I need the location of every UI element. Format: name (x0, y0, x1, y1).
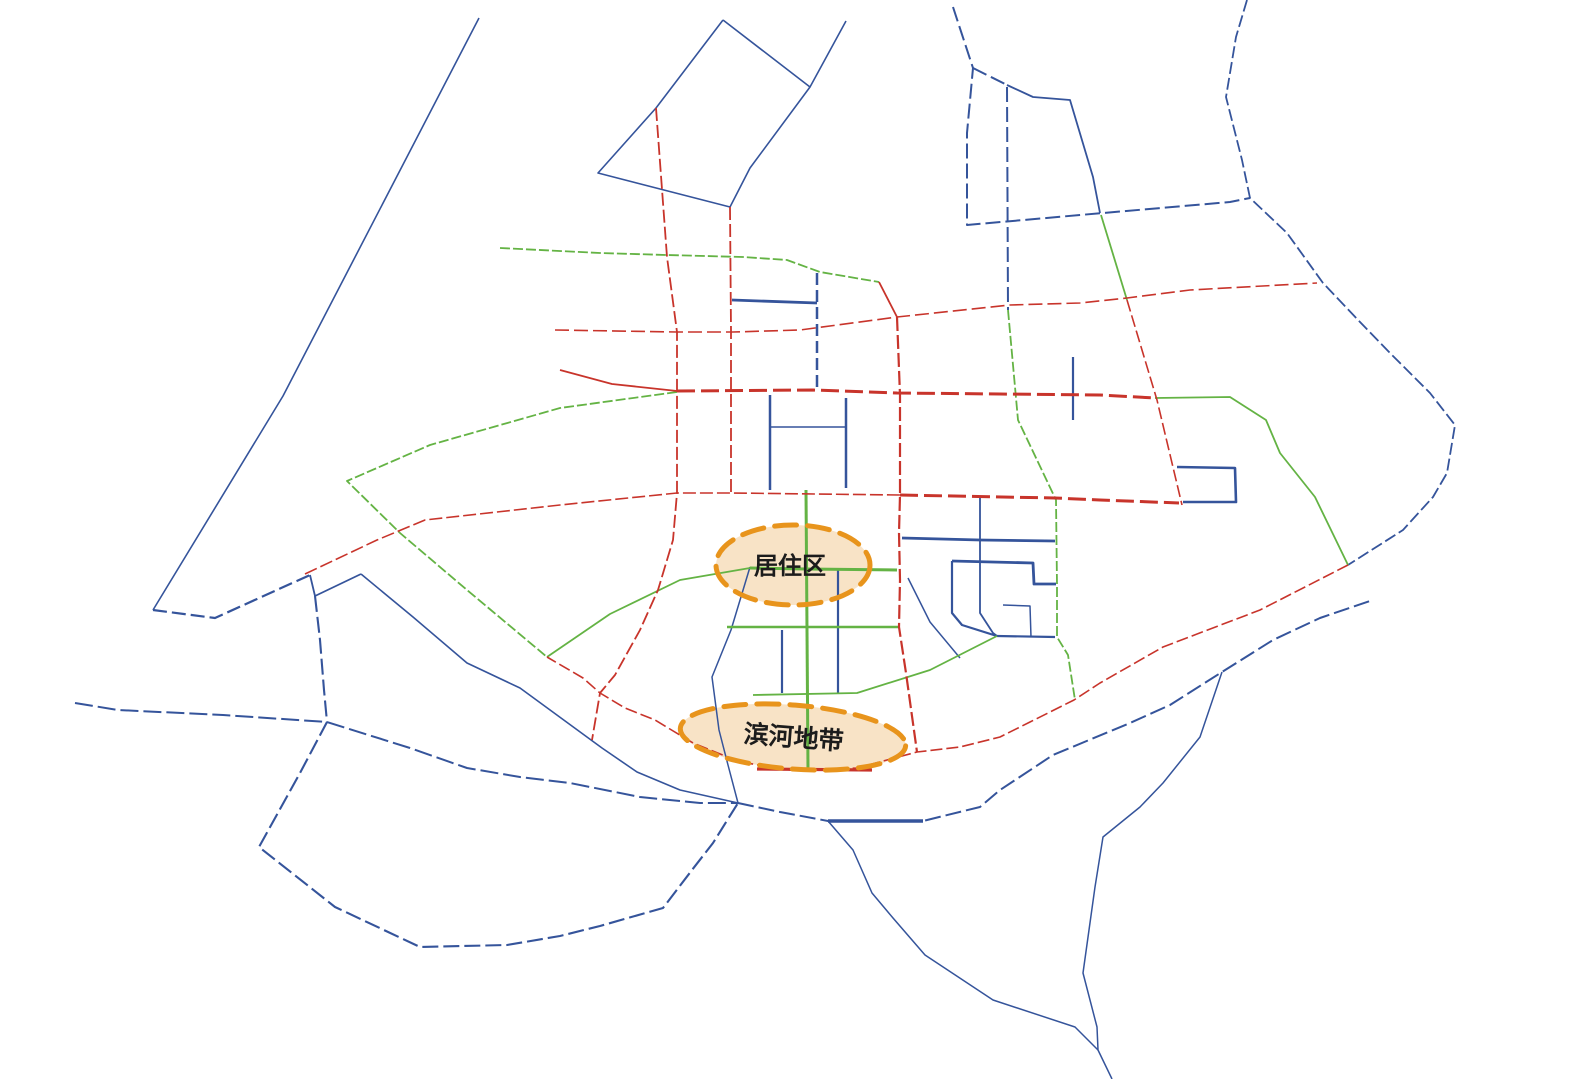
road-blue-10 (828, 821, 1098, 1050)
road-blue-1 (153, 18, 479, 610)
road-network-svg: 居住区滨河地带 (0, 0, 1575, 1079)
road-blue-30 (1003, 605, 1031, 637)
red-road-layer (305, 108, 1348, 770)
road-blue-25 (902, 538, 1055, 541)
road-green-7 (500, 248, 879, 282)
road-blue-4 (361, 574, 738, 803)
road-blue-11 (712, 567, 750, 803)
road-blue-17 (1007, 85, 1100, 213)
road-green-1 (347, 392, 677, 657)
road-blue-14 (730, 87, 810, 207)
road-blue-3 (310, 574, 361, 596)
road-blue-6 (75, 703, 738, 803)
road-blue-13 (723, 20, 846, 87)
road-red-4 (555, 283, 1317, 332)
road-red-2 (730, 207, 731, 493)
road-red-3 (897, 317, 917, 752)
road-red-1 (592, 108, 677, 740)
road-blue-34 (1177, 467, 1236, 502)
road-blue-16 (973, 68, 1008, 310)
road-blue-27 (952, 561, 1056, 584)
road-red-10 (1127, 300, 1182, 505)
road-blue-5 (259, 596, 738, 947)
road-green-8 (1101, 215, 1127, 300)
road-green-10 (1008, 310, 1075, 700)
road-blue-23 (732, 300, 817, 303)
road-blue-12 (598, 20, 730, 207)
road-blue-18 (1226, 0, 1455, 565)
road-red-6 (677, 390, 1155, 398)
road-red-5 (560, 370, 677, 391)
road-green-6 (753, 636, 997, 695)
residential-area-label: 居住区 (754, 552, 826, 580)
road-red-9 (879, 282, 897, 317)
road-blue-15 (953, 7, 1250, 225)
city-planning-map: 居住区滨河地带 (0, 0, 1575, 1079)
road-blue-2 (153, 575, 310, 618)
road-green-9 (1155, 397, 1348, 565)
road-blue-28 (952, 561, 997, 636)
road-red-8 (900, 495, 1179, 503)
road-blue-29 (997, 636, 1055, 637)
road-blue-26 (980, 498, 997, 636)
